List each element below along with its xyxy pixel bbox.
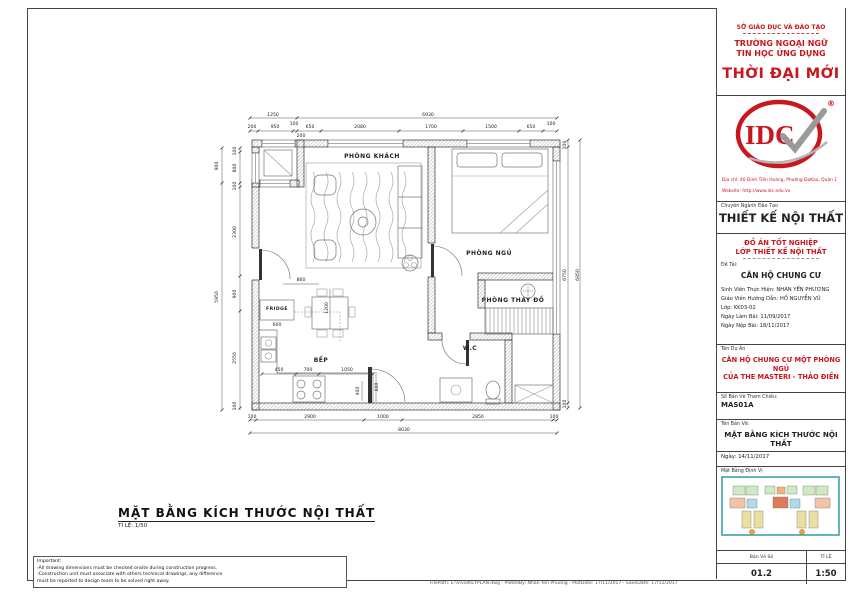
submit-date: Ngày Nộp Bài: 18/11/2017 xyxy=(721,322,841,331)
school-name: TRƯỜNG NGOẠI NGỮ TIN HỌC ỨNG DỤNG xyxy=(717,39,845,59)
dimension-label: 100 xyxy=(290,121,299,127)
registered-mark: ® xyxy=(827,99,835,108)
reference-section: Số Bản Vẽ Tham Chiếu: MAS01A xyxy=(717,393,845,420)
dimension-label: 1500 xyxy=(485,124,497,130)
school-line: TIN HỌC ỨNG DỤNG xyxy=(717,49,845,59)
project-info: Sinh Viên Thực Hiện: NHAN YẾN PHƯƠNG Giá… xyxy=(717,284,845,333)
teacher-name: Giáo Viên Hướng Dẫn: HỒ NGUYỄN VŨ xyxy=(721,295,841,304)
dimension-label: 1050 xyxy=(341,367,353,373)
class-name: Lớp: KK03-02 xyxy=(721,304,841,313)
dimension-label: 1700 xyxy=(425,124,437,130)
room-label: W.C xyxy=(463,345,477,352)
project-name-line: CĂN HỘ CHUNG CƯ MỘT PHÒNG NGỦ xyxy=(719,356,843,373)
drawing-sheet: PHÒNG KHÁCHPHÒNG NGỦPHÒNG THAY ĐỒW.CBẾPF… xyxy=(0,0,850,602)
date-section: Ngày: 14/11/2017 xyxy=(717,452,845,467)
dimension-label: 100 xyxy=(562,141,568,150)
dimension-label: 650 xyxy=(527,124,536,130)
drawing-name-section: Tên Bản Vẽ: MẶT BẰNG KÍCH THƯỚC NỘI THẤT xyxy=(717,420,845,452)
dimension-label: 100 xyxy=(562,400,568,409)
project-name-line: CỦA THE MASTERI - THẢO ĐIỀN xyxy=(719,373,843,382)
project-type-line: LỚP THIẾT KẾ NỘI THẤT xyxy=(717,248,845,257)
dimension-label: 600 xyxy=(273,322,282,328)
major-name: THIẾT KẾ NỘI THẤT xyxy=(717,211,845,225)
room-label: PHÒNG KHÁCH xyxy=(344,153,400,160)
drawing-date: Ngày: 14/11/2017 xyxy=(717,452,845,462)
dimension-label: 2300 xyxy=(232,226,238,238)
logo-text: IDC xyxy=(745,120,795,150)
plot-info: FilePath: E:\Viva\KEYPLAN.dwg - PlotedBy… xyxy=(430,581,730,586)
separator xyxy=(743,258,820,259)
dimension-label: 1000 xyxy=(377,414,389,420)
dimension-label: 8030 xyxy=(398,427,410,433)
plan-scale-note: TỈ LỆ: 1/50 xyxy=(118,523,375,529)
topic-label: Đề Tài: xyxy=(717,261,845,268)
school-line: TRƯỜNG NGOẠI NGỮ xyxy=(717,39,845,49)
dimension-label: 6930 xyxy=(422,112,434,118)
project-label: Tên Dự Án xyxy=(717,345,845,352)
dimension-label: 900 xyxy=(232,290,238,299)
sheet-number-label: Bản Vẽ Số xyxy=(717,551,806,564)
title-block-header: SỞ GIÁO DỤC VÀ ĐÀO TẠO TRƯỜNG NGOẠI NGỮ … xyxy=(717,8,845,96)
dimension-label: 5950 xyxy=(214,291,220,303)
title-block: SỞ GIÁO DỤC VÀ ĐÀO TẠO TRƯỜNG NGOẠI NGỮ … xyxy=(716,8,845,579)
disclaimer-line: must be reported to design team to be so… xyxy=(37,579,343,586)
student-name: Sinh Viên Thực Hiện: NHAN YẾN PHƯƠNG xyxy=(721,286,841,295)
disclaimer-box: Important: -All drawing dimensions must … xyxy=(33,556,347,588)
dimension-label: 1200 xyxy=(324,302,330,314)
sheet-number-table: Bản Vẽ Số 01.2 TỈ LỆ 1:50 xyxy=(717,551,845,584)
drawing-name: MẶT BẰNG KÍCH THƯỚC NỘI THẤT xyxy=(718,430,844,448)
keyplan-thumbnail xyxy=(721,476,840,540)
sheet-number-value: 01.2 xyxy=(717,564,806,584)
dimension-label: 2080 xyxy=(354,124,366,130)
dimension-label: 2550 xyxy=(232,352,238,364)
project-type-section: ĐỒ ÁN TỐT NGHIỆP LỚP THIẾT KẾ NỘI THẤT Đ… xyxy=(717,234,845,345)
dimension-label: 1250 xyxy=(267,112,279,118)
dimension-label: 860 xyxy=(297,277,306,283)
project-type: ĐỒ ÁN TỐT NGHIỆP LỚP THIẾT KẾ NỘI THẤT xyxy=(717,239,845,256)
separator xyxy=(743,33,820,34)
dimension-label: 600 xyxy=(374,383,380,392)
room-label: FRIDGE xyxy=(266,306,288,312)
dimension-label: 100 xyxy=(547,121,556,127)
major-section: Chuyên Ngành Đào Tạo THIẾT KẾ NỘI THẤT xyxy=(717,202,845,234)
logo-section: ® IDC Địa chỉ: 40 Đinh Tiên Hoàng, Phườn… xyxy=(717,96,845,202)
dimension-label: 6950 xyxy=(575,269,581,281)
idc-logo-icon: IDC xyxy=(733,98,829,170)
keyplan-section: Mặt Bằng Định Vị xyxy=(717,467,845,551)
start-date: Ngày Làm Bài: 11/09/2017 xyxy=(721,313,841,322)
topic-name: CĂN HỘ CHUNG CƯ xyxy=(717,271,845,280)
school-brand: THỜI ĐẠI MỚI xyxy=(717,66,845,82)
room-label: PHÒNG NGỦ xyxy=(466,249,512,257)
dimension-label: 100 xyxy=(550,414,559,420)
school-address: Địa chỉ: 40 Đinh Tiên Hoàng, Phường ĐaKa… xyxy=(717,177,845,185)
dimension-label: 100 xyxy=(232,182,238,191)
dimension-label: 200 xyxy=(297,133,306,139)
dimension-label: 650 xyxy=(306,124,315,130)
project-name-section: Tên Dự Án CĂN HỘ CHUNG CƯ MỘT PHÒNG NGỦ … xyxy=(717,345,845,393)
dimension-label: 2850 xyxy=(472,414,484,420)
dimension-label: 100 xyxy=(232,147,238,156)
scale-label: TỈ LỆ xyxy=(807,551,845,564)
dimension-label: 450 xyxy=(275,367,284,373)
dimension-label: 100 xyxy=(248,414,257,420)
project-type-line: ĐỒ ÁN TỐT NGHIỆP xyxy=(717,239,845,248)
ministry-name: SỞ GIÁO DỤC VÀ ĐÀO TẠO xyxy=(717,24,845,31)
reference-label: Số Bản Vẽ Tham Chiếu: xyxy=(717,393,845,400)
school-website: Website: http://www.idc.edu.vn xyxy=(717,188,845,196)
dimension-label: 2900 xyxy=(304,414,316,420)
plan-caption: MẶT BẰNG KÍCH THƯỚC NỘI THẤT TỈ LỆ: 1/50 xyxy=(118,506,375,529)
dimension-label: 950 xyxy=(271,124,280,130)
dimension-label: 700 xyxy=(304,367,313,373)
room-label: PHÒNG THAY ĐỒ xyxy=(482,295,545,304)
reference-number: MAS01A xyxy=(717,400,845,412)
dimension-label: 900 xyxy=(214,162,220,171)
scale-value: 1:50 xyxy=(807,564,845,584)
dimension-label: 100 xyxy=(232,402,238,411)
dimension-label: 6750 xyxy=(562,269,568,281)
dimension-label: 200 xyxy=(248,124,257,130)
keyplan-label: Mặt Bằng Định Vị xyxy=(717,467,845,474)
room-label: BẾP xyxy=(314,356,329,364)
dimension-label: 800 xyxy=(232,164,238,173)
major-label: Chuyên Ngành Đào Tạo xyxy=(717,202,845,209)
project-name: CĂN HỘ CHUNG CƯ MỘT PHÒNG NGỦ CỦA THE MA… xyxy=(719,356,843,382)
plan-title: MẶT BẰNG KÍCH THƯỚC NỘI THẤT xyxy=(118,506,375,522)
drawing-label: Tên Bản Vẽ: xyxy=(717,420,845,427)
dimension-label: 400 xyxy=(355,387,361,396)
